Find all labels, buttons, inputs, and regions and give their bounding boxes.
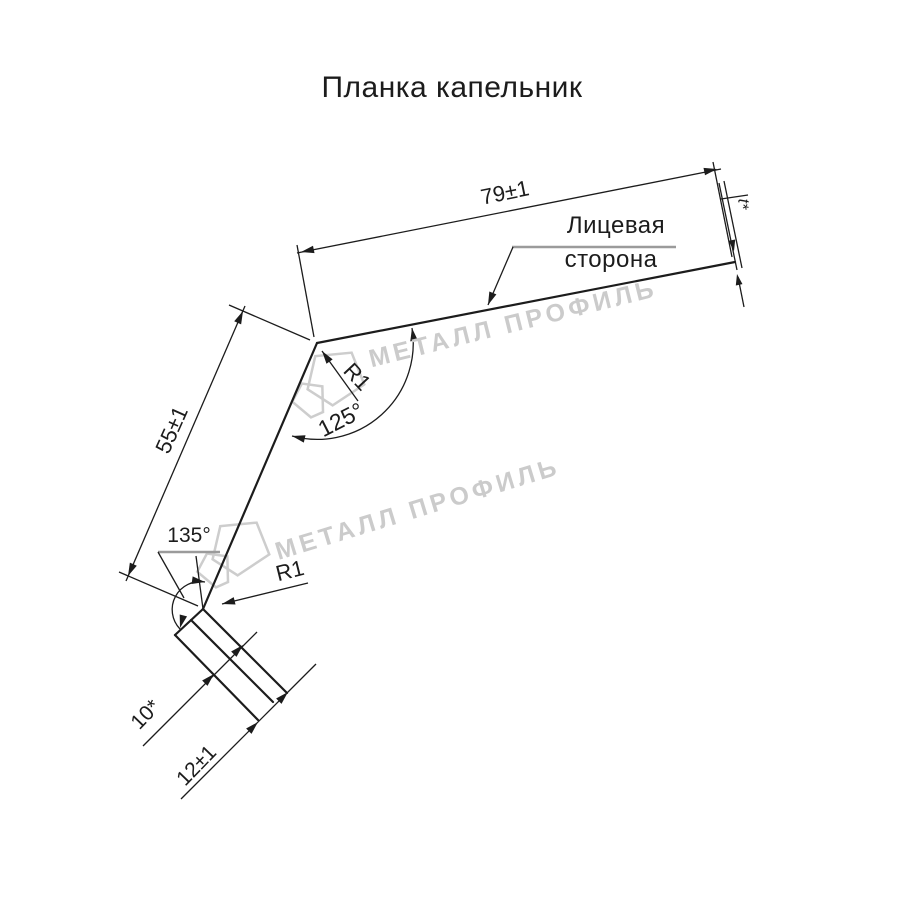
arrow-face-leader [484,292,496,307]
technical-drawing-linework [0,0,900,900]
ext-line-thickness-1 [719,183,737,270]
arrow-10-inner [202,671,217,686]
arrow-thickness-lower [734,273,743,285]
profile-lip-edge-inner [175,635,258,720]
arrow-arc125-bottom [291,432,305,442]
angle-label-135: 135° [167,524,210,548]
profile-lip-edge-outer [203,609,287,693]
leader-radius-bottom [222,583,308,604]
page-title: Планка капельник [321,71,582,105]
profile-lip-cap [175,609,203,635]
ext-line-79-right [713,162,732,257]
ext-line-55-bottom [119,572,198,606]
arrow-79-left [300,246,314,256]
arrow-radius-bottom [221,597,235,608]
ext-line-thickness-2 [724,181,742,268]
profile-lip-fold [191,620,273,702]
face-side-label-line2: сторона [565,246,658,274]
ext-line-79-left [297,245,314,337]
drawing-canvas: МЕТАЛЛ ПРОФИЛЬ МЕТАЛЛ ПРОФИЛЬ Планка кап… [0,0,900,900]
face-side-label-line1: Лицевая [567,212,665,240]
